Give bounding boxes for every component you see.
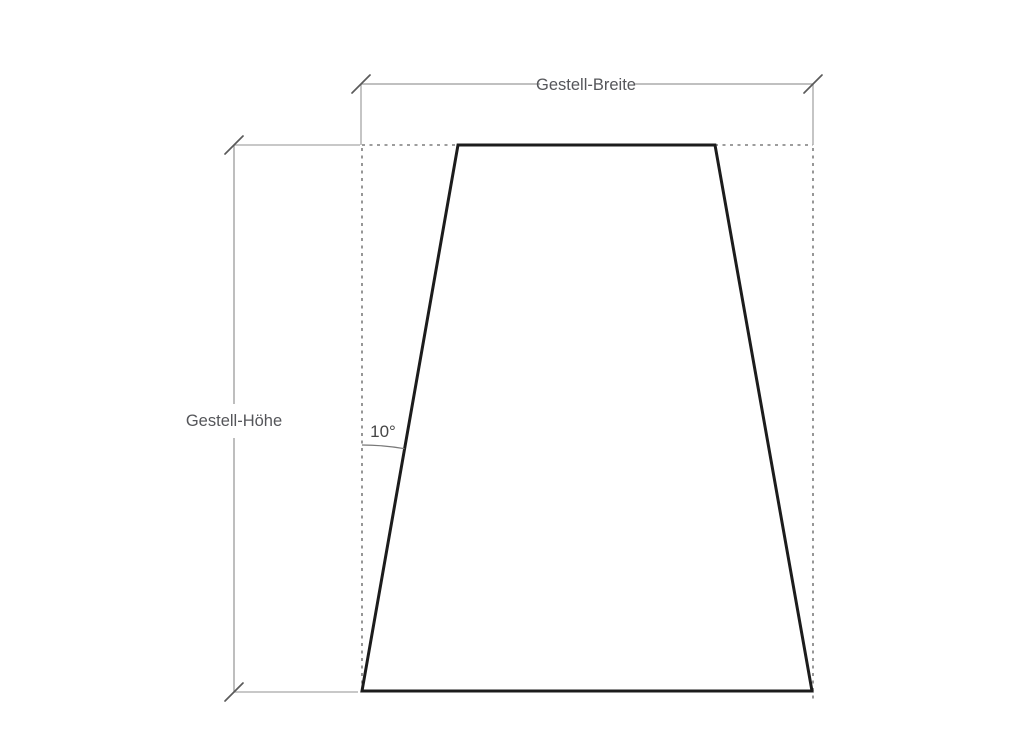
dimension-drawing: Gestell-Breite Gestell-Höhe 10° [0, 0, 1025, 754]
angle-arc [362, 445, 405, 449]
technical-drawing-canvas: Gestell-Breite Gestell-Höhe 10° [0, 0, 1025, 754]
width-dimension-label: Gestell-Breite [536, 76, 636, 94]
trapezoid-frame-outline [362, 145, 812, 691]
height-dimension-label: Gestell-Höhe [186, 412, 282, 430]
angle-label: 10° [370, 422, 396, 441]
